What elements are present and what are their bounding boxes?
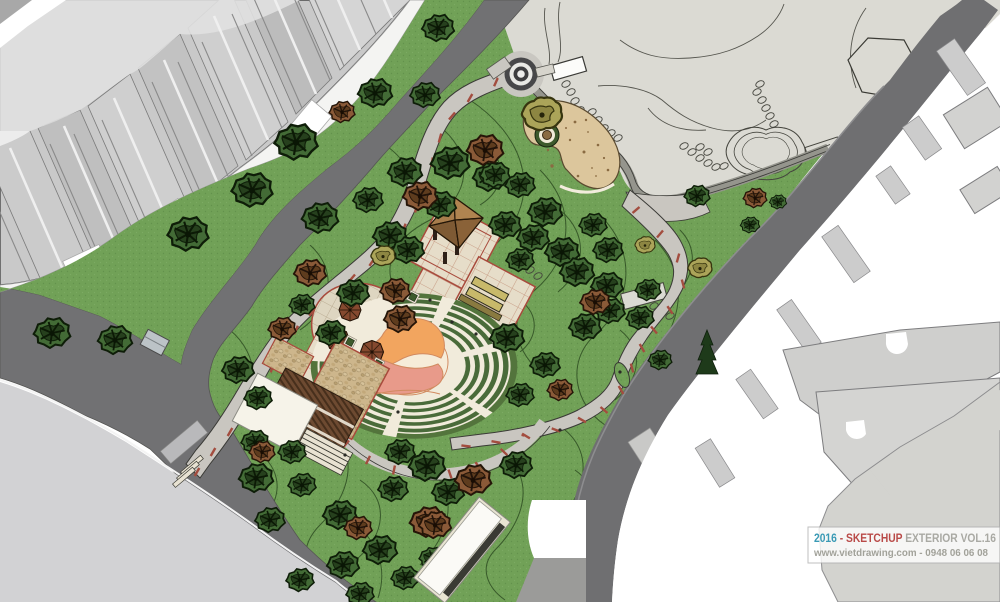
svg-text:www.vietdrawing.com - 0948 06: www.vietdrawing.com - 0948 06 06 08	[813, 548, 989, 559]
svg-text:2016 - SKETCHUP EXTERIOR VOL.1: 2016 - SKETCHUP EXTERIOR VOL.16	[814, 533, 996, 545]
